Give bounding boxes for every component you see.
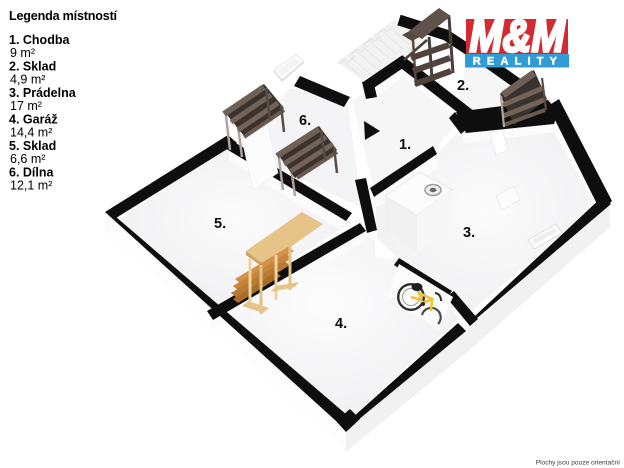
svg-text:2. Sklad: 2. Sklad — [9, 60, 56, 74]
svg-text:6.: 6. — [299, 113, 311, 129]
svg-text:3.: 3. — [463, 225, 475, 241]
svg-text:5. Sklad: 5. Sklad — [9, 139, 56, 153]
svg-text:1. Chodba: 1. Chodba — [9, 33, 70, 47]
svg-text:M&M: M&M — [470, 11, 566, 62]
svg-text:5.: 5. — [214, 216, 226, 232]
svg-text:17 m²: 17 m² — [10, 99, 42, 113]
svg-text:4,9 m²: 4,9 m² — [10, 73, 45, 87]
svg-text:1.: 1. — [399, 137, 411, 153]
svg-text:REALITY: REALITY — [473, 56, 563, 68]
svg-text:4. Garáž: 4. Garáž — [9, 113, 58, 127]
svg-text:6. Dílna: 6. Dílna — [9, 166, 55, 180]
svg-text:4.: 4. — [335, 316, 347, 332]
svg-text:2.: 2. — [457, 78, 469, 94]
svg-text:12,1 m²: 12,1 m² — [10, 179, 52, 193]
svg-text:Plochy jsou pouze orientační: Plochy jsou pouze orientační — [536, 460, 620, 467]
svg-text:Legenda místností: Legenda místností — [9, 9, 118, 23]
svg-text:6,6 m²: 6,6 m² — [10, 152, 45, 166]
svg-text:14,4 m²: 14,4 m² — [10, 126, 52, 140]
svg-text:3. Prádelna: 3. Prádelna — [9, 86, 77, 100]
svg-text:9 m²: 9 m² — [10, 46, 35, 60]
